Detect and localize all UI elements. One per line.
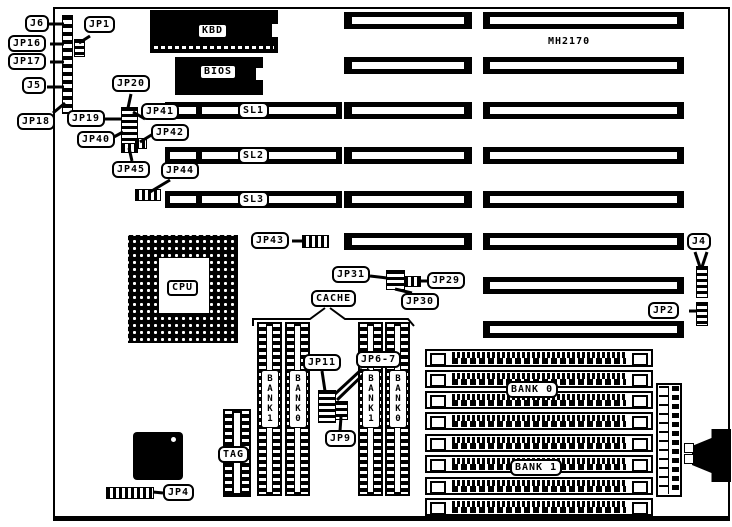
slot-label-sl1: SL1 [238,102,269,119]
callout-jp16: JP16 [8,35,46,52]
power-connector [656,383,682,497]
slot-label-sl2: SL2 [238,147,269,164]
simm-bank1-label: BANK 1 [510,459,562,476]
jp1-jumper [74,39,85,57]
callout-jp42: JP42 [151,124,189,141]
callout-jp30: JP30 [401,293,439,310]
cache-bank1-label: BANK1 [362,370,380,428]
isa-slot-bar [483,277,684,294]
jp29-jumper [404,276,421,287]
callout-j4: J4 [687,233,711,250]
isa-slot-bar [483,233,684,250]
callout-jp44: JP44 [161,162,199,179]
kbd-chip-socket-line [154,46,274,49]
isa-ext-bar [344,57,472,74]
callout-jp17: JP17 [8,53,46,70]
callout-jp1: JP1 [84,16,115,33]
isa-ext-bar [344,191,472,208]
jp43-jumper [302,235,329,248]
edge-pin-header [62,15,73,114]
callout-cache: CACHE [311,290,356,307]
plcc-pin1-dot [171,437,176,442]
isa-ext-bar [344,102,472,119]
callout-jp43: JP43 [251,232,289,249]
callout-jp18: JP18 [17,113,55,130]
kbd-chip-label: KBD [197,23,228,39]
callout-jp29: JP29 [427,272,465,289]
callout-j6: J6 [25,15,49,32]
jp31-jp30-jumper-block [386,270,405,290]
jp9-jumper [335,401,348,420]
din-pin [684,443,694,453]
isa-ext-bar [344,233,472,250]
jp44-jumper [135,189,161,201]
slot-label-sl3: SL3 [238,191,269,208]
simm-socket [425,498,653,516]
board-model-text: MH2170 [548,36,590,47]
tag-chip-label: TAG [218,446,249,463]
callout-jp40: JP40 [77,131,115,148]
jp11-jp67-jumper-block [318,390,336,423]
isa-ext-bar [344,147,472,164]
callout-j5: J5 [22,77,46,94]
bios-chip-notch [256,68,263,80]
callout-jp9: JP9 [325,430,356,447]
j4-connector-pins [696,266,708,298]
callout-jp4: JP4 [163,484,194,501]
bios-chip-label: BIOS [199,64,237,80]
callout-jp31: JP31 [332,266,370,283]
jp4-jumper [106,487,154,499]
motherboard-diagram: MH2170 KBD BIOS CPU SL1 SL2 SL3 [0,0,732,527]
callout-jp6-7: JP6-7 [356,351,401,368]
isa-slot-bar [483,102,684,119]
cpu-label: CPU [167,280,198,296]
callout-jp41: JP41 [141,103,179,120]
isa-slot-bar [483,147,684,164]
isa-slot-bar [483,57,684,74]
simm-socket [425,434,653,452]
callout-jp11: JP11 [303,354,341,371]
isa-slot-bar [483,321,684,338]
isa-ext-bar [344,12,472,29]
callout-jp20: JP20 [112,75,150,92]
jp45-jumper [121,143,138,153]
callout-jp2: JP2 [648,302,679,319]
din-pin [684,454,694,464]
simm-bank0-label: BANK 0 [506,381,558,398]
isa-slot-bar [483,12,684,29]
cache-bank0-label: BANK0 [289,370,307,428]
simm-socket [425,349,653,367]
cache-bank1-label: BANK1 [261,370,279,428]
jp2-jumper [696,302,708,326]
isa-slot-bar [483,191,684,208]
simm-socket [425,412,653,430]
callout-jp19: JP19 [67,110,105,127]
kbd-chip-notch [272,24,278,37]
simm-socket [425,477,653,495]
callout-jp45: JP45 [112,161,150,178]
cache-bank0-label: BANK0 [389,370,407,428]
